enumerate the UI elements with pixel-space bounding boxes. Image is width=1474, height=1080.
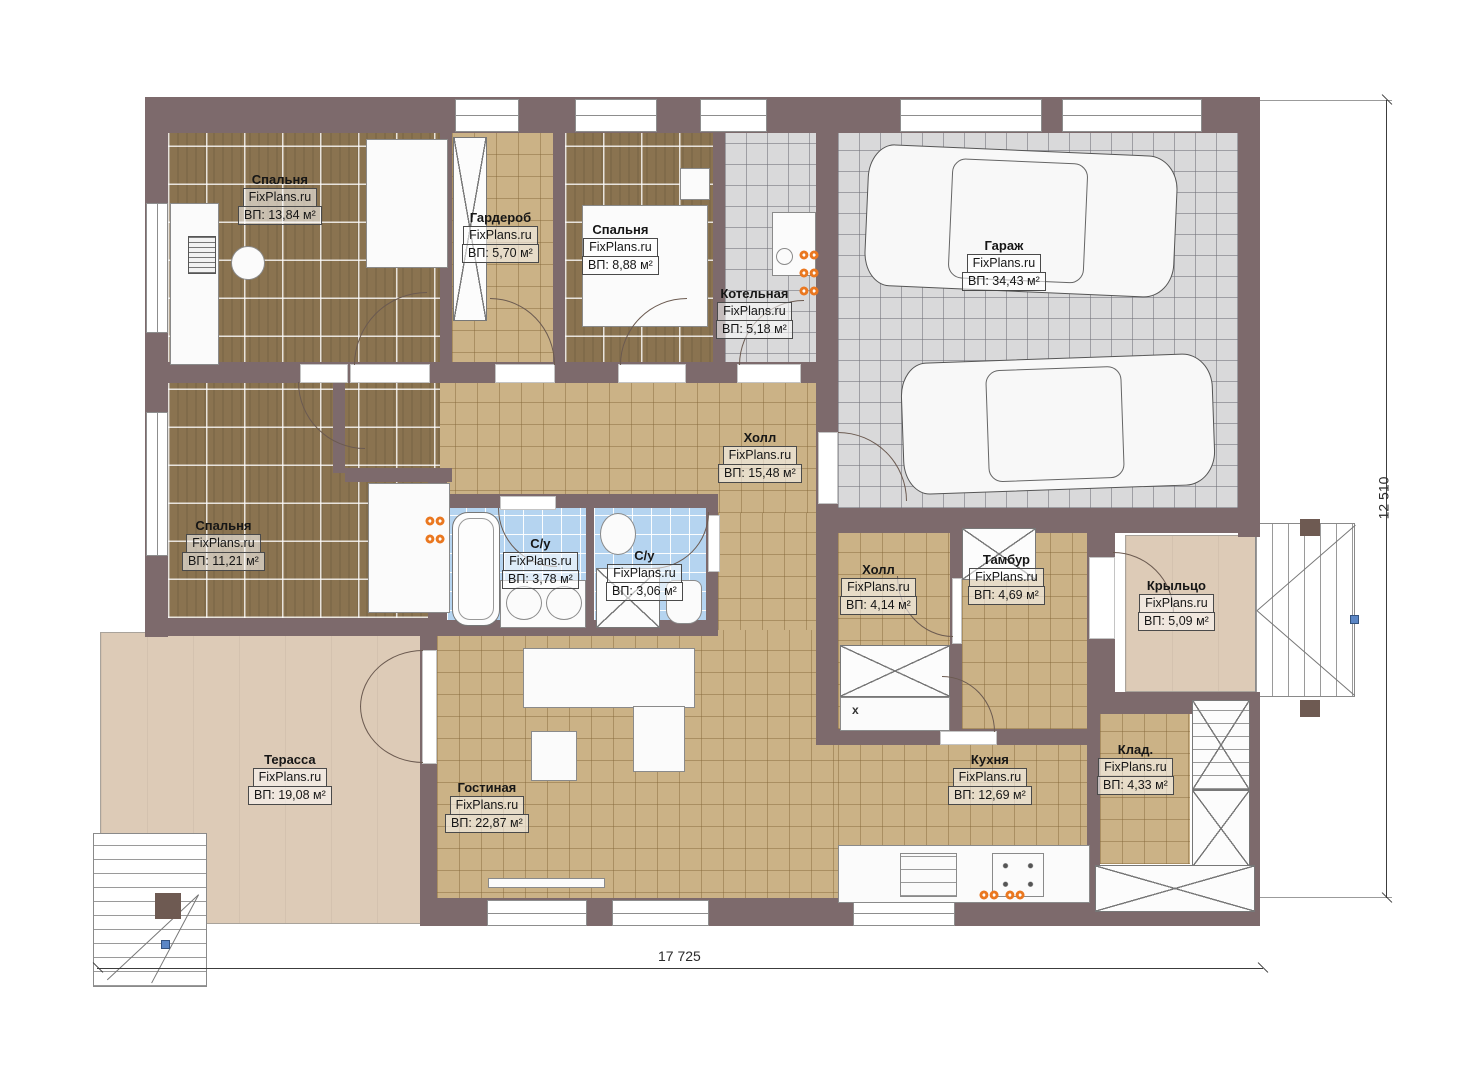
dishwasher-icon (900, 853, 957, 897)
tv-stand-icon (488, 878, 605, 888)
room-label-bedroom-2: Спальня FixPlans.ru ВП: 8,88 м² (582, 222, 659, 275)
room-label-porch: Крыльцо FixPlans.ru ВП: 5,09 м² (1138, 578, 1215, 631)
room-watermark: FixPlans.ru (723, 446, 798, 465)
room-area: ВП: 15,48 м² (718, 464, 802, 483)
porch-post-bottom (1300, 700, 1320, 717)
terrace-post (155, 893, 181, 919)
boiler-icon (772, 212, 816, 276)
sink-icon (546, 586, 582, 620)
garage-door-2 (1062, 99, 1202, 132)
wall-garage-bottom (816, 508, 1260, 533)
room-area: ВП: 3,06 м² (606, 582, 683, 601)
floor-plan: x Спальня FixPlans.ru ВП: 13,84 м² Гарде… (0, 0, 1474, 1080)
room-label-boiler: Котельная FixPlans.ru ВП: 5,18 м² (716, 286, 793, 339)
room-watermark: FixPlans.ru (450, 796, 525, 815)
room-area: ВП: 4,69 м² (968, 586, 1045, 605)
room-name: С/у (634, 548, 654, 563)
dimension-line-bottom (97, 968, 1263, 969)
room-area: ВП: 5,70 м² (462, 244, 539, 263)
room-watermark: FixPlans.ru (243, 188, 318, 207)
desk-icon (170, 203, 219, 365)
dimension-extension-line (1248, 897, 1392, 898)
stairs-icon (1192, 700, 1250, 790)
room-name: Холл (862, 562, 895, 577)
window-left-bedroom1 (146, 203, 168, 333)
dimension-extension-line (1260, 100, 1392, 101)
window-left-bedroom3 (146, 412, 168, 556)
wall-bed3-bottom (145, 618, 438, 636)
door-garage (818, 432, 838, 504)
bed-icon (368, 483, 450, 613)
room-area: ВП: 4,14 м² (840, 596, 917, 615)
room-watermark: FixPlans.ru (717, 302, 792, 321)
closet-icon (840, 645, 950, 697)
room-label-bedroom-1: Спальня FixPlans.ru ВП: 13,84 м² (238, 172, 322, 225)
door-wardrobe (495, 364, 555, 383)
room-name: Спальня (592, 222, 648, 237)
wall-wardrobe-bed2 (553, 133, 565, 363)
radiator-icon (798, 286, 820, 296)
room-label-bathroom-1: С/у FixPlans.ru ВП: 3,78 м² (502, 536, 579, 589)
room-area: ВП: 8,88 м² (582, 256, 659, 275)
room-watermark: FixPlans.ru (503, 552, 578, 571)
room-label-terrace: Терасса FixPlans.ru ВП: 19,08 м² (248, 752, 332, 805)
entry-door (1089, 557, 1115, 639)
window-bottom-kitchen (853, 900, 955, 926)
porch-steps-icon (1255, 523, 1355, 697)
room-name: Кухня (971, 752, 1009, 767)
room-label-bedroom-3: Спальня FixPlans.ru ВП: 11,21 м² (182, 518, 265, 571)
radiator-icon (798, 268, 820, 278)
dimension-height-label: 12 510 (1375, 477, 1391, 520)
room-area: ВП: 13,84 м² (238, 206, 322, 225)
radiator-icon (1004, 890, 1026, 900)
room-label-bathroom-2: С/у FixPlans.ru ВП: 3,06 м² (606, 548, 683, 601)
room-label-hall: Холл FixPlans.ru ВП: 15,48 м² (718, 430, 802, 483)
terrace-door (422, 650, 437, 764)
room-watermark: FixPlans.ru (583, 238, 658, 257)
room-label-living-room: Гостиная FixPlans.ru ВП: 22,87 м² (445, 780, 529, 833)
door-bedroom1 (350, 364, 430, 383)
garage-door-1 (900, 99, 1042, 132)
room-watermark: FixPlans.ru (607, 564, 682, 583)
radiator-icon (424, 534, 446, 544)
coffee-table-icon (531, 731, 577, 781)
boiler-valve-icon (776, 248, 793, 265)
window-top-bedroom2 (575, 99, 657, 132)
room-area: ВП: 3,78 м² (502, 570, 579, 589)
room-label-garage: Гараж FixPlans.ru ВП: 34,43 м² (962, 238, 1046, 291)
room-watermark: FixPlans.ru (463, 226, 538, 245)
room-name: Крыльцо (1147, 578, 1206, 593)
room-name: Гараж (984, 238, 1023, 253)
door-boiler (737, 364, 801, 383)
bed-icon (366, 139, 448, 268)
room-watermark: FixPlans.ru (953, 768, 1028, 787)
kitchen-counter-icon (838, 845, 1090, 903)
room-watermark: FixPlans.ru (969, 568, 1044, 587)
room-label-hall-2: Холл FixPlans.ru ВП: 4,14 м² (840, 562, 917, 615)
room-area: ВП: 5,18 м² (716, 320, 793, 339)
car-cabin (985, 366, 1125, 483)
radiator-icon (798, 250, 820, 260)
window-bottom-living-1 (487, 900, 587, 926)
cabinet-mark: x (852, 703, 859, 717)
radiator-icon (978, 890, 1000, 900)
wall-bath-top (440, 494, 718, 508)
room-name: Спальня (252, 172, 308, 187)
room-name: Спальня (195, 518, 251, 533)
door-bedroom3 (300, 364, 348, 383)
wall-right-garage (1238, 97, 1260, 537)
room-watermark: FixPlans.ru (1098, 758, 1173, 777)
room-name: Котельная (720, 286, 788, 301)
room-area: ВП: 22,87 м² (445, 814, 529, 833)
room-area: ВП: 5,09 м² (1138, 612, 1215, 631)
room-area: ВП: 12,69 м² (948, 786, 1032, 805)
room-watermark: FixPlans.ru (1139, 594, 1214, 613)
closet-icon (1095, 865, 1255, 912)
room-area: ВП: 19,08 м² (248, 786, 332, 805)
room-label-tambur: Тамбур FixPlans.ru ВП: 4,69 м² (968, 552, 1045, 605)
wall-bath-mid (586, 508, 594, 630)
room-area: ВП: 11,21 м² (182, 552, 265, 571)
room-name: Тамбур (983, 552, 1030, 567)
room-name: Терасса (264, 752, 316, 767)
room-label-kitchen: Кухня FixPlans.ru ВП: 12,69 м² (948, 752, 1032, 805)
dimension-width-label: 17 725 (658, 948, 701, 964)
room-name: Клад. (1118, 742, 1153, 757)
room-watermark: FixPlans.ru (841, 578, 916, 597)
room-area: ВП: 34,43 м² (962, 272, 1046, 291)
window-top-boiler (700, 99, 767, 132)
room-label-storage: Клад. FixPlans.ru ВП: 4,33 м² (1097, 742, 1174, 795)
radiator-icon (424, 516, 446, 526)
bathtub-icon (452, 512, 500, 626)
door-hall2-tambur (952, 578, 962, 644)
door-hall2-kitchen (940, 731, 997, 745)
window-bottom-living-2 (612, 900, 709, 926)
car-icon (900, 353, 1216, 496)
room-label-wardrobe: Гардероб FixPlans.ru ВП: 5,70 м² (462, 210, 539, 263)
nightstand-icon (680, 168, 710, 200)
sofa-chaise-icon (633, 706, 685, 772)
closet-icon (1192, 790, 1250, 867)
porch-marker-dot (1350, 615, 1359, 624)
room-name: Холл (744, 430, 777, 445)
room-watermark: FixPlans.ru (253, 768, 328, 787)
door-bathroom2 (708, 515, 720, 572)
sofa-icon (523, 648, 695, 708)
room-name: Гардероб (470, 210, 531, 225)
terrace-marker-dot (161, 940, 170, 949)
wall-hall-top (145, 362, 838, 383)
room-name: С/у (530, 536, 550, 551)
computer-monitor-icon (188, 236, 216, 274)
room-name: Гостиная (458, 780, 517, 795)
porch-post-top (1300, 519, 1320, 536)
room-watermark: FixPlans.ru (967, 254, 1042, 273)
door-bedroom2 (618, 364, 686, 383)
room-watermark: FixPlans.ru (186, 534, 261, 553)
wall-hall2-left (816, 508, 838, 729)
sink-icon (506, 586, 542, 620)
room-area: ВП: 4,33 м² (1097, 776, 1174, 795)
chair-icon (231, 246, 265, 280)
window-top-wardrobe (455, 99, 519, 132)
